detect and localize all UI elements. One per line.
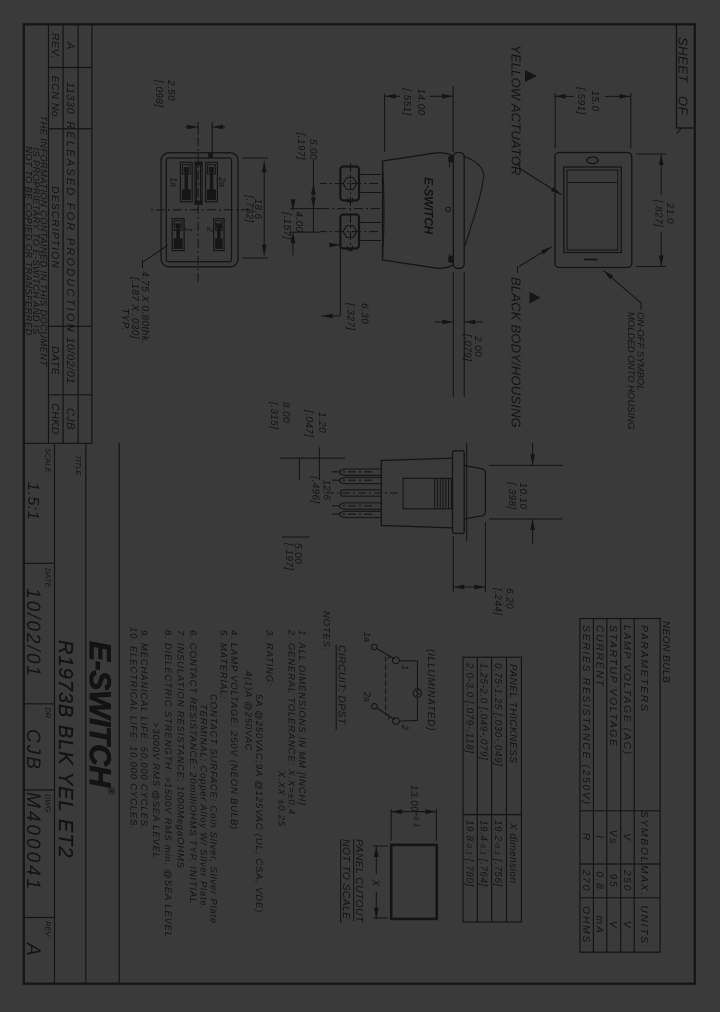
svg-text:1a: 1a (362, 632, 372, 642)
svg-text:1. ALL DIMENSIONS IN MM [INCH: 1. ALL DIMENSIONS IN MM [INCH] (296, 630, 307, 806)
svg-text:MOLDED ONTO HOUSING: MOLDED ONTO HOUSING (625, 312, 636, 430)
svg-text:8. DIELECTRIC STRENGTH: >15: 8. DIELECTRIC STRENGTH: >1500V RMS min. … (162, 630, 173, 938)
svg-text:[.098]: [.098] (153, 79, 164, 107)
svg-text:1.25-2.0 [.049-.079]: 1.25-2.0 [.049-.079] (478, 663, 489, 760)
svg-text:0.75-1.25 [.030-.049]: 0.75-1.25 [.030-.049] (492, 663, 503, 766)
svg-text:SHEET: SHEET (676, 37, 691, 83)
svg-text:SYMBOL: SYMBOL (638, 811, 650, 864)
svg-text:2a: 2a (362, 691, 372, 702)
svg-text:9. MECHANICAL LIFE: 50,000: 9. MECHANICAL LIFE: 50,000 CYCLES. (138, 630, 149, 830)
svg-text:[.157]: [.157] (281, 211, 292, 239)
svg-text:PARAMETERS: PARAMETERS (638, 625, 650, 713)
svg-text:[.496]: [.496] (310, 475, 321, 503)
svg-text:>3000V RMS @SEA LEVEL: >3000V RMS @SEA LEVEL (150, 722, 161, 859)
svg-text:TYP.: TYP. (119, 308, 130, 331)
svg-text:1.20: 1.20 (316, 412, 327, 433)
svg-text:1.5:1: 1.5:1 (24, 482, 41, 520)
svg-text:6. CONTACT RESISTANCE: 20mi: 6. CONTACT RESISTANCE: 20milliOHMS TYP. … (187, 630, 198, 904)
svg-text:NOT TO SCALE: NOT TO SCALE (340, 839, 352, 920)
svg-text:NOT TO BE COPIED OR TRANSFERRE: NOT TO BE COPIED OR TRANSFERRED (24, 146, 34, 335)
svg-text:10/02/01: 10/02/01 (22, 588, 43, 678)
svg-text:V: V (621, 833, 633, 842)
svg-text:2a: 2a (217, 176, 227, 187)
svg-text:250: 250 (621, 869, 633, 892)
svg-text:[.047]: [.047] (303, 409, 314, 437)
svg-text:5.00: 5.00 (307, 139, 318, 160)
svg-text:CJB: CJB (22, 729, 43, 771)
svg-text:19.8-0.1 [.780]: 19.8-0.1 [.780] (463, 820, 474, 887)
svg-text:V: V (607, 921, 619, 930)
svg-text:10/02/01: 10/02/01 (64, 337, 76, 384)
svg-text:V: V (621, 921, 633, 930)
svg-text:OF: OF (676, 96, 691, 116)
svg-text:[.732]: [.732] (244, 194, 255, 222)
svg-text:[.079]: [.079] (462, 333, 473, 361)
svg-text:15.0: 15.0 (589, 90, 600, 111)
svg-text:4. LAMP VOLTAGE: 250V (NEO: 4. LAMP VOLTAGE: 250V (NEON BULB) (228, 630, 239, 830)
svg-text:[.327]: [.327] (345, 302, 356, 330)
svg-text:REV.: REV. (49, 33, 61, 59)
svg-text:12.6: 12.6 (321, 479, 332, 500)
svg-text:2.50: 2.50 (165, 79, 176, 101)
svg-text:4.00: 4.00 (293, 211, 304, 232)
svg-text:10.10: 10.10 (517, 482, 528, 509)
svg-text:®: ® (105, 787, 116, 795)
svg-text:M400041: M400041 (22, 792, 43, 892)
svg-text:PANEL CUTOUT: PANEL CUTOUT (353, 839, 365, 924)
svg-text:NOTES:: NOTES: (321, 611, 332, 651)
svg-text:R: R (580, 833, 592, 842)
svg-text:21.0: 21.0 (664, 202, 675, 224)
svg-text:E-SWITCH: E-SWITCH (83, 641, 116, 789)
svg-text:MAX.: MAX. (638, 865, 650, 897)
svg-text:2.0-3.0 [.079-.118]: 2.0-3.0 [.079-.118] (463, 662, 474, 753)
svg-text:[.197]: [.197] (295, 132, 306, 160)
svg-text:R1973B BLK YEL ET2: R1973B BLK YEL ET2 (54, 640, 76, 859)
svg-text:SCALE: SCALE (44, 448, 53, 474)
svg-text:Vs: Vs (607, 830, 619, 845)
svg-text:DR: DR (44, 708, 53, 719)
svg-text:[.187 X .030]: [.187 X .030] (129, 276, 140, 339)
svg-text:E-SWITCH: E-SWITCH (422, 177, 436, 235)
svg-text:DATE: DATE (49, 346, 61, 376)
svg-text:X.XX ±0.25: X.XX ±0.25 (276, 770, 287, 827)
svg-text:DWG: DWG (44, 794, 53, 812)
svg-text:6.20: 6.20 (504, 588, 515, 609)
svg-text:(ILLUMINATED): (ILLUMINATED) (425, 649, 436, 731)
svg-text:10. ELECTRICAL LIFE: 10,000: 10. ELECTRICAL LIFE: 10,000 CYCLES. (128, 627, 139, 830)
svg-text:DATE: DATE (44, 568, 53, 588)
svg-text:2: 2 (400, 724, 410, 730)
svg-text:CONTACT SURFACE: Coin Silve: CONTACT SURFACE: Coin Silver, Silver Pla… (208, 694, 219, 924)
svg-text:CJB: CJB (64, 408, 76, 430)
svg-text:I: I (594, 835, 606, 840)
svg-text:3. RATING:: 3. RATING: (264, 630, 275, 686)
svg-text:4.75 X 0.80thk.: 4.75 X 0.80thk. (139, 271, 150, 344)
svg-text:11330: 11330 (64, 82, 76, 115)
svg-text:2: 2 (206, 226, 216, 232)
svg-text:OHMS: OHMS (580, 906, 592, 944)
svg-text:[.315]: [.315] (268, 401, 279, 429)
svg-text:[.827]: [.827] (653, 199, 664, 227)
svg-text:SERIES RESISTANCE (250V): SERIES RESISTANCE (250V) (580, 625, 592, 806)
svg-text:RELEASED FOR PRODUCTION: RELEASED FOR PRODUCTION (64, 121, 76, 334)
svg-text:5A @250VAC;9A @125VAC (UL,: 5A @250VAC;9A @125VAC (UL, CSA, VDE) (253, 694, 264, 913)
svg-text:TITLE: TITLE (74, 455, 83, 476)
svg-text:UNITS: UNITS (638, 905, 650, 945)
svg-text:X dimension: X dimension (507, 822, 518, 884)
svg-text:[.591]: [.591] (575, 86, 586, 114)
svg-text:LAMP VOLTAGE (AC): LAMP VOLTAGE (AC) (621, 625, 633, 756)
svg-text:4(1)A @250VAC: 4(1)A @250VAC (243, 671, 254, 751)
svg-text:1: 1 (400, 665, 410, 670)
svg-text:TERMINAL: Copper Alloy W/: TERMINAL: Copper Alloy W/ Silver Plate. (198, 704, 209, 910)
svg-text:19.2-0.1 [.756]: 19.2-0.1 [.756] (492, 820, 503, 887)
svg-text:270: 270 (580, 869, 592, 892)
svg-text:ON-OFF SYMBOL: ON-OFF SYMBOL (635, 312, 646, 390)
svg-text:PANEL THICKNESS: PANEL THICKNESS (507, 664, 518, 763)
svg-text:CHKD: CHKD (49, 403, 61, 435)
svg-text:8.00: 8.00 (280, 402, 291, 423)
svg-text:A: A (64, 41, 76, 50)
svg-text:95: 95 (607, 873, 619, 888)
svg-text:14.00: 14.00 (415, 88, 426, 115)
svg-text:6.30: 6.30 (359, 303, 370, 324)
svg-text:mA: mA (594, 916, 606, 935)
svg-text:2. GENERAL TOLERANCE: X.X=±0: 2. GENERAL TOLERANCE: X.X=±0.4 (286, 629, 297, 815)
svg-text:BLACK BODY/HOUSING: BLACK BODY/HOUSING (509, 277, 524, 428)
svg-text:YELLOW ACTUATOR: YELLOW ACTUATOR (509, 45, 524, 176)
svg-text:DESCRIPTION: DESCRIPTION (49, 186, 61, 269)
svg-text:7. INSULATION RESISTANCE: 1: 7. INSULATION RESISTANCE: 1000MegaOHMS (175, 630, 186, 869)
svg-text:CURRENT: CURRENT (594, 625, 606, 688)
svg-text:[.398]: [.398] (506, 481, 517, 509)
svg-text:NEON BULB: NEON BULB (660, 621, 671, 683)
svg-text:A: A (22, 942, 43, 956)
svg-text:19.4-0.1 [.764]: 19.4-0.1 [.764] (478, 820, 489, 887)
svg-text:X: X (370, 879, 381, 887)
svg-text:[.197]: [.197] (283, 542, 294, 570)
svg-text:1: 1 (184, 227, 194, 232)
svg-text:REV: REV (44, 921, 53, 937)
svg-text:STARTUP VOLTAGE: STARTUP VOLTAGE (607, 625, 619, 748)
svg-text:1a: 1a (169, 177, 179, 187)
svg-text:0.8: 0.8 (594, 871, 606, 890)
svg-text:[.244]: [.244] (492, 587, 503, 615)
svg-text:2.00: 2.00 (472, 335, 483, 357)
svg-text:5. MATERIAL:: 5. MATERIAL: (218, 630, 229, 700)
svg-text:[.551]: [.551] (401, 87, 412, 115)
svg-text:13.00+0.1: 13.00+0.1 (408, 785, 419, 827)
svg-text:CIRCUIT: DPST: CIRCUIT: DPST (336, 645, 348, 726)
svg-text:ECN No.: ECN No. (49, 76, 61, 121)
